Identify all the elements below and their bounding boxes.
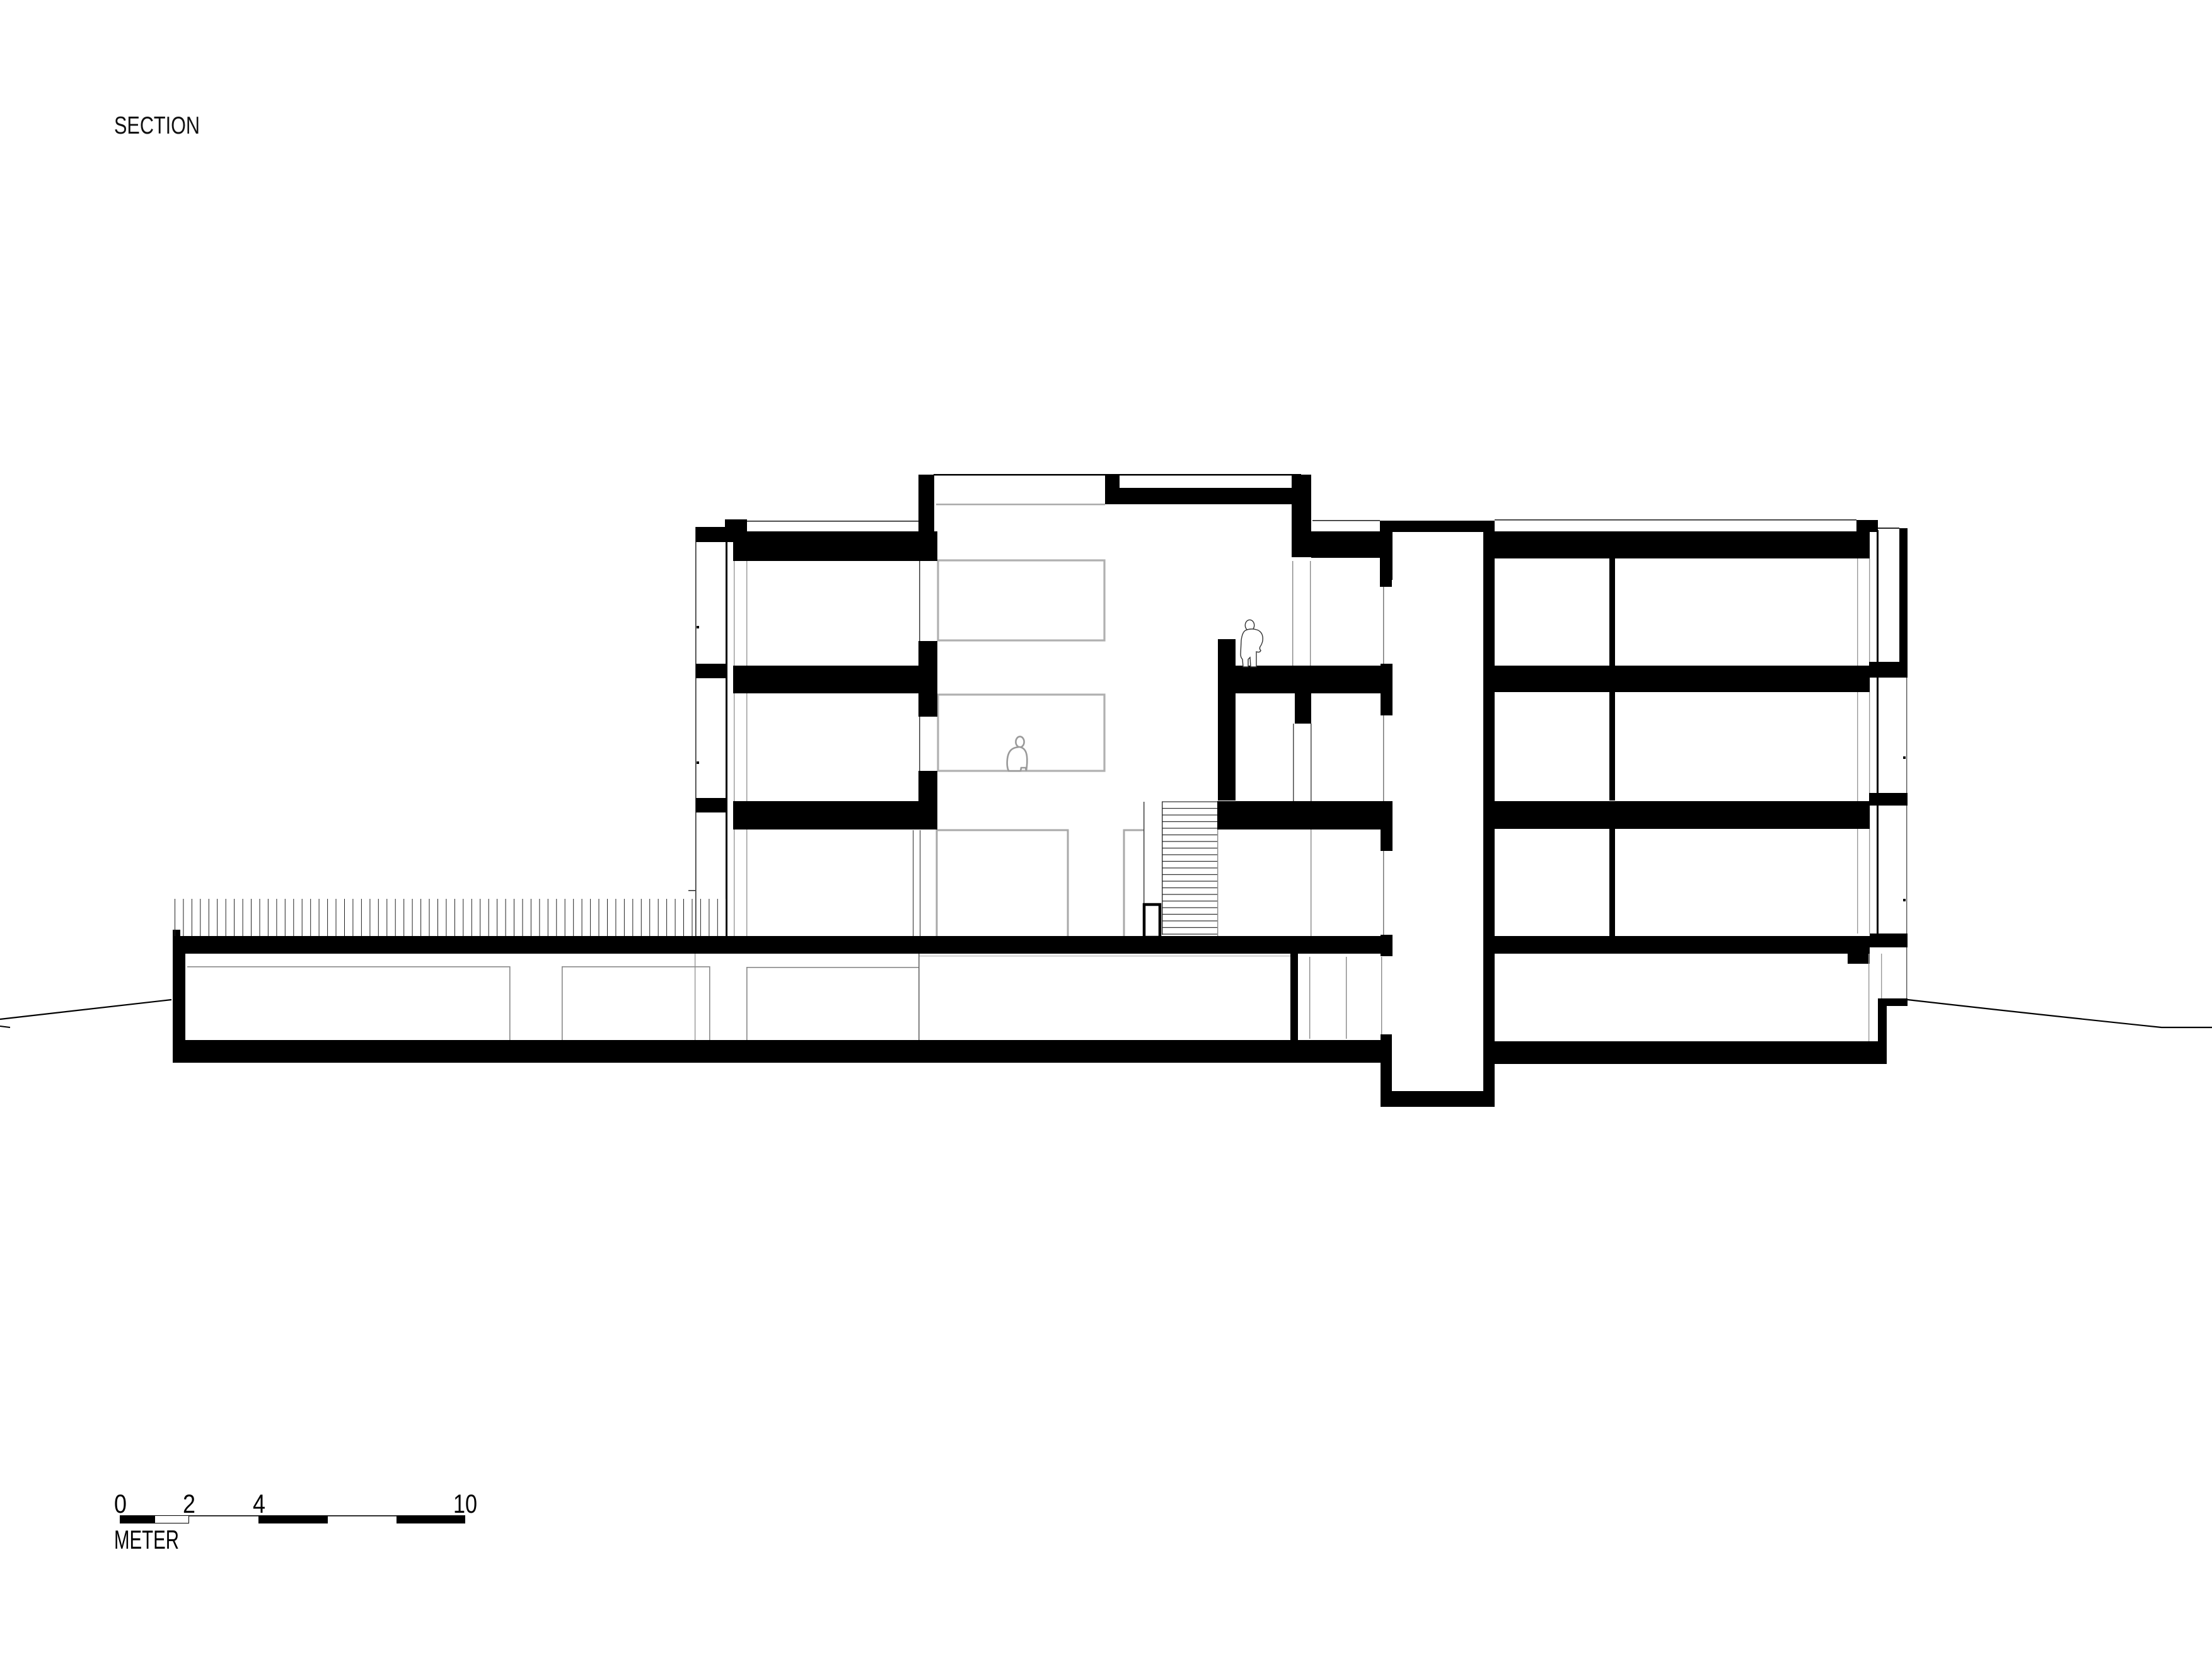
svg-text:0: 0 xyxy=(114,1489,127,1518)
svg-text:2: 2 xyxy=(183,1489,195,1518)
svg-text:SECTION: SECTION xyxy=(114,112,200,139)
svg-text:4: 4 xyxy=(253,1489,265,1518)
svg-text:10: 10 xyxy=(453,1489,477,1518)
svg-text:METER: METER xyxy=(114,1525,179,1554)
